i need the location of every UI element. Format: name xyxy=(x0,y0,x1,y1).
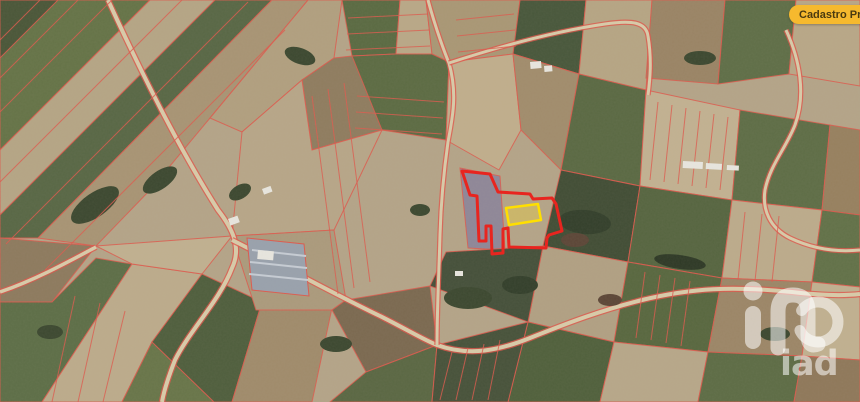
highlighted-parcel[interactable] xyxy=(506,204,541,225)
grain-texture xyxy=(0,0,860,402)
cadastro-predial-badge[interactable]: Cadastro Predial xyxy=(789,5,860,24)
map-viewport[interactable]: iad Cadastro Predial xyxy=(0,0,860,402)
cadastro-predial-badge-label: Cadastro Predial xyxy=(799,9,860,21)
satellite-map[interactable] xyxy=(0,0,860,402)
